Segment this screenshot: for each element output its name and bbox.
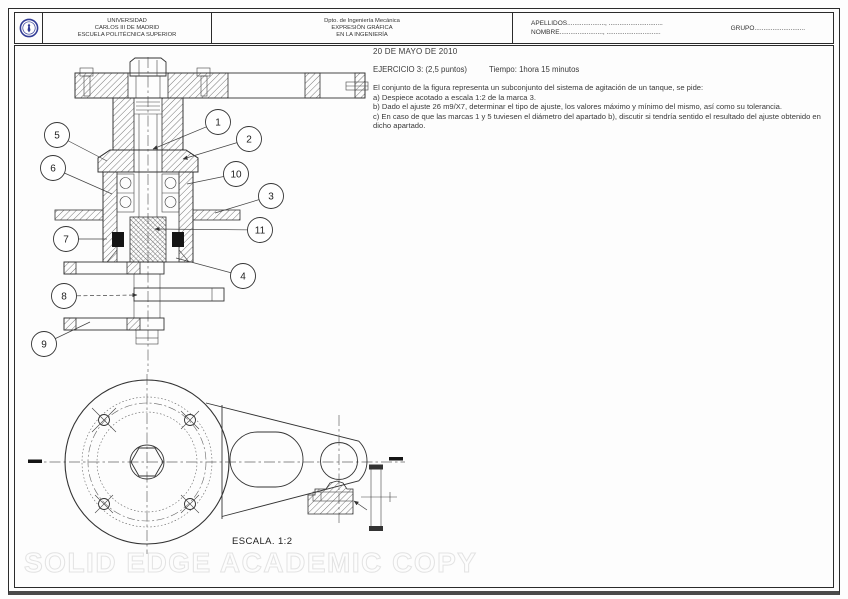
exercise-label: EJERCICIO 3: (2,5 puntos) [373,65,467,74]
statement-item-b: b) Dado el ajuste 26 m9/X7, determinar e… [373,102,837,112]
balloon-number-9: 9 [41,340,47,351]
balloon-number-8: 8 [61,292,67,303]
balloon-number-11: 11 [255,226,266,237]
balloon-number-6: 6 [50,164,56,175]
bolt-holes [92,408,199,513]
arm-slot [230,432,303,487]
plan-view [28,374,405,554]
balloon-number-1: 1 [215,118,221,129]
scale-label: ESCALA. 1:2 [232,536,292,547]
balloon-number-10: 10 [230,170,242,181]
balloon-number-4: 4 [240,272,246,283]
balloon-number-5: 5 [54,131,60,142]
exam-sheet-page: UNIVERSIDAD CARLOS III DE MADRID ESCUELA… [0,0,848,599]
clamp-detail [308,481,367,514]
lower-shaft-assembly [64,262,224,344]
balloon-leader-11 [155,229,260,230]
time-label: Tiempo: 1hora 15 minutos [489,65,579,74]
balloon-number-2: 2 [246,135,252,146]
exam-date: 20 DE MAYO DE 2010 [373,47,457,56]
exercise-header: EJERCICIO 3: (2,5 puntos)Tiempo: 1hora 1… [373,65,579,74]
statement-intro: El conjunto de la figura representa un s… [373,83,837,93]
balloon-number-7: 7 [63,235,69,246]
statement-item-a: a) Despiece acotado a escala 1:2 de la m… [373,93,837,103]
exam-statement: El conjunto de la figura representa un s… [373,83,837,131]
side-bar-detail [361,465,397,532]
solid-edge-watermark: SOLID EDGE ACADEMIC COPY [24,547,477,579]
balloon-number-3: 3 [268,192,274,203]
statement-item-c: c) En caso de que las marcas 1 y 5 tuvie… [373,112,837,131]
section-view [55,57,368,372]
